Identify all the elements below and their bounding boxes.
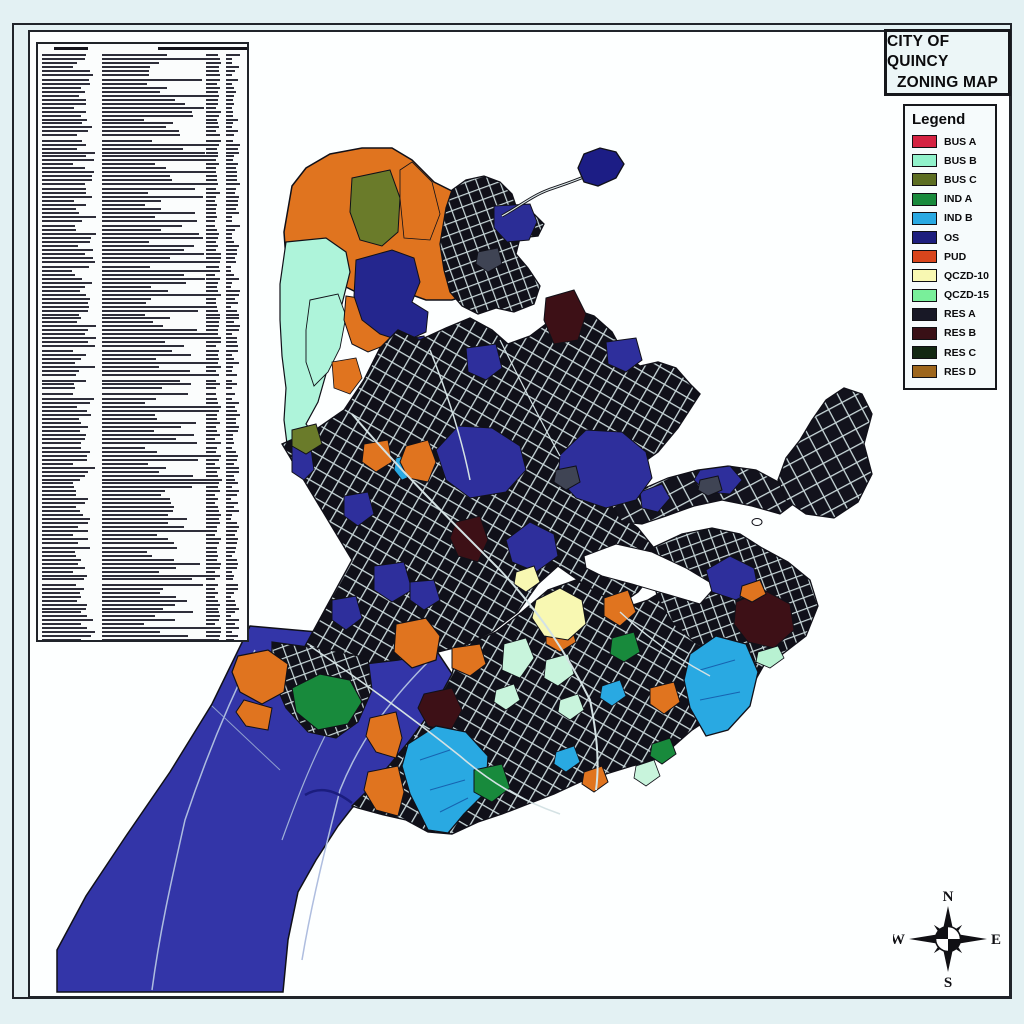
zoning-map-page: CITY OF QUINCY ZONING MAP Legend BUS ABU… [0,0,1024,1024]
legend-label: PUD [944,251,966,263]
legend-swatch [912,327,937,340]
legend-swatch [912,231,937,244]
amendments-row [40,638,245,642]
legend-label: BUS A [944,136,976,148]
map-title-line1: CITY OF QUINCY [887,32,1008,72]
legend-item-res-c: RES C [912,343,995,362]
amendments-row [40,182,245,186]
legend-item-bus-b: BUS B [912,151,995,170]
legend-item-res-b: RES B [912,324,995,343]
amendments-table [36,42,249,642]
amendments-row [40,260,245,264]
amendments-row [40,541,245,545]
legend-item-qczd-10: QCZD-10 [912,266,995,285]
amendments-row [40,577,245,581]
amendments-row [40,441,245,445]
title-box: CITY OF QUINCY ZONING MAP [884,29,1011,96]
amendments-row [40,392,245,396]
legend-swatch [912,269,937,282]
legend-label: IND A [944,193,972,205]
legend-label: RES C [944,347,976,359]
legend-item-bus-c: BUS C [912,170,995,189]
legend-label: BUS B [944,155,977,167]
legend-label: QCZD-10 [944,270,989,282]
legend: Legend BUS ABUS BBUS CIND AIND BOSPUDQCZ… [903,104,997,390]
amendments-row [40,133,245,137]
legend-item-bus-a: BUS A [912,132,995,151]
legend-label: OS [944,232,959,244]
amendments-row [40,373,245,377]
legend-swatch [912,193,937,206]
legend-label: BUS C [944,174,977,186]
legend-item-ind-a: IND A [912,190,995,209]
legend-title: Legend [912,111,995,128]
legend-swatch [912,346,937,359]
legend-item-res-d: RES D [912,362,995,381]
legend-label: IND B [944,212,973,224]
map-title-line2: ZONING MAP [897,73,998,93]
amendments-row [40,344,245,348]
legend-item-os: OS [912,228,995,247]
legend-label: RES D [944,366,976,378]
amendments-row [40,73,245,77]
amendments-table-header [40,46,245,51]
legend-swatch [912,289,937,302]
compass-east-label: E [991,932,1001,948]
legend-label: RES B [944,327,976,339]
compass-south-label: S [944,975,952,991]
compass-rose: N S W E [893,886,1003,992]
compass-west-label: W [893,932,905,948]
amendments-table-rows [40,53,245,642]
legend-swatch [912,135,937,148]
legend-swatch [912,173,937,186]
legend-items: BUS ABUS BBUS CIND AIND BOSPUDQCZD-10QCZ… [912,132,995,381]
legend-swatch [912,308,937,321]
legend-swatch [912,365,937,378]
legend-item-pud: PUD [912,247,995,266]
amendments-row [40,219,245,223]
legend-label: RES A [944,308,976,320]
legend-item-ind-b: IND B [912,209,995,228]
legend-swatch [912,212,937,225]
legend-item-res-a: RES A [912,305,995,324]
amendments-row [40,386,245,390]
legend-swatch [912,250,937,263]
compass-north-label: N [943,889,954,905]
legend-item-qczd-15: QCZD-15 [912,286,995,305]
legend-label: QCZD-15 [944,289,989,301]
legend-swatch [912,154,937,167]
